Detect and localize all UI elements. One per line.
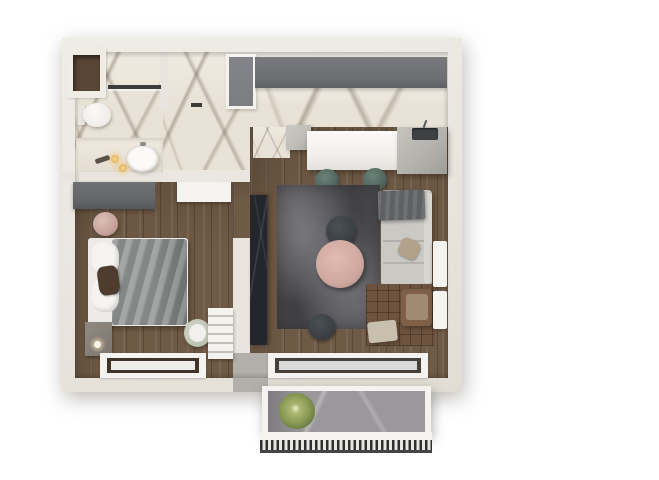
sofa-backrest [424, 193, 432, 283]
candle-2 [119, 164, 127, 172]
bed-blanket [112, 239, 187, 325]
radiator-lower [433, 291, 447, 329]
toilet-bowl [83, 103, 111, 127]
shelf-unit [208, 308, 233, 359]
tv-marble-panel [250, 195, 267, 345]
bedroom-door-leaf [177, 182, 231, 202]
balcony-door-glass [279, 361, 417, 370]
bedroom-pouf [93, 212, 118, 236]
ottoman [367, 320, 398, 344]
vanity-faucet [140, 142, 146, 146]
floor-plan-canvas [0, 0, 659, 480]
armchair-cushion [406, 294, 428, 320]
sofa-cushion-seam-2 [383, 262, 424, 264]
kitchen-floor-extension [253, 127, 290, 158]
round-chair-cushion [189, 324, 206, 342]
radiator-upper [433, 241, 447, 287]
doorway-floor [233, 182, 250, 240]
table-lamp [94, 341, 101, 348]
bath-door-mark [191, 103, 202, 107]
vanity-sink [126, 145, 159, 172]
wardrobe [73, 182, 155, 209]
sofa-throw-blanket [377, 189, 425, 221]
west-wall-shadow [75, 52, 80, 378]
bed-dark-pillow [96, 265, 121, 297]
plant-highlight [291, 404, 300, 413]
kitchen-floor [253, 88, 448, 127]
shower-glass [108, 89, 161, 91]
floor-pouf [308, 314, 335, 340]
east-wall-shadow [443, 57, 448, 378]
bathroom-hall-wall [160, 52, 168, 108]
kitchen-cabinet-run [255, 57, 447, 88]
bedroom-window-pane [111, 361, 195, 370]
island-counter [307, 131, 397, 170]
closet-interior [73, 55, 100, 91]
candle-1 [111, 155, 119, 163]
kitchen-sink [412, 128, 438, 140]
entry-door [229, 57, 253, 106]
round-coffee-table [316, 240, 364, 288]
railing-base-shadow [260, 450, 432, 453]
cabinet-shadow [255, 88, 447, 93]
railing-top-bar [260, 432, 432, 440]
